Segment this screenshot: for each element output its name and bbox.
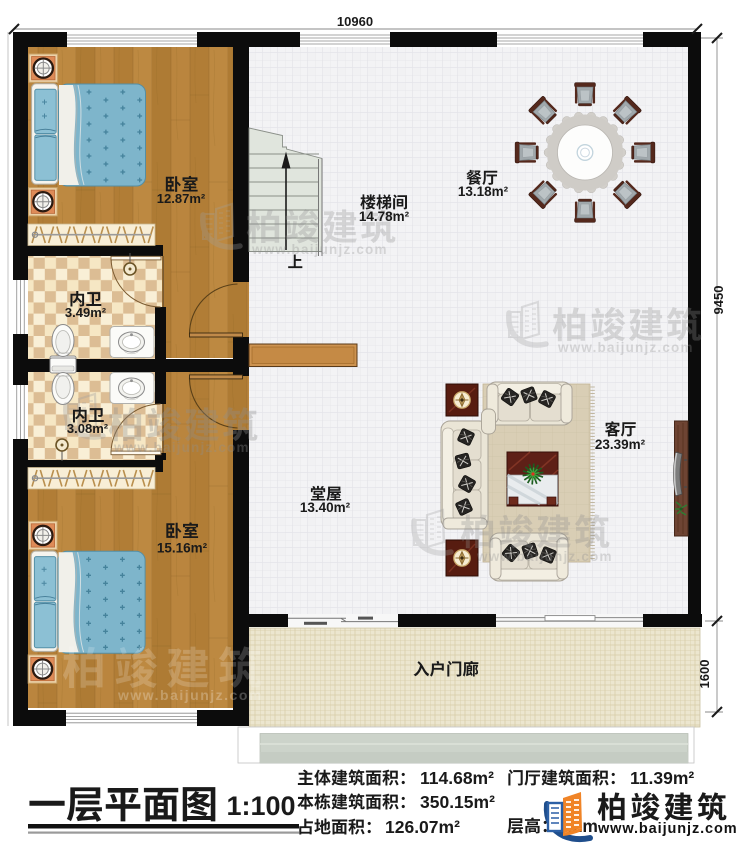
svg-text:23.39m²: 23.39m² [595,437,646,452]
svg-text:3.49m²: 3.49m² [65,305,107,320]
svg-text:9450: 9450 [711,286,726,315]
svg-text:11.39m²: 11.39m² [630,768,694,788]
svg-text:13.18m²: 13.18m² [458,184,509,199]
svg-text:www.baijunjz.com: www.baijunjz.com [117,687,263,703]
svg-text:1600: 1600 [697,660,712,689]
svg-text:www.baijunjz.com: www.baijunjz.com [251,242,388,257]
svg-text:114.68m²: 114.68m² [420,768,494,788]
svg-text:www.baijunjz.com: www.baijunjz.com [476,549,613,564]
svg-text:www.baijunjz.com: www.baijunjz.com [597,821,738,837]
svg-text:350.15m²: 350.15m² [420,792,495,812]
svg-text:10960: 10960 [337,14,373,29]
svg-text:1:100: 1:100 [226,791,295,821]
svg-text:13.40m²: 13.40m² [300,500,351,515]
svg-text:12.87m²: 12.87m² [157,191,206,206]
svg-text:www.baijunjz.com: www.baijunjz.com [557,340,694,355]
svg-text:3.08m²: 3.08m² [67,421,109,436]
svg-text:www.baijunjz.com: www.baijunjz.com [113,440,250,455]
svg-text:15.16m²: 15.16m² [157,541,208,556]
svg-text:126.07m²: 126.07m² [385,817,460,837]
svg-text:14.78m²: 14.78m² [359,209,410,224]
